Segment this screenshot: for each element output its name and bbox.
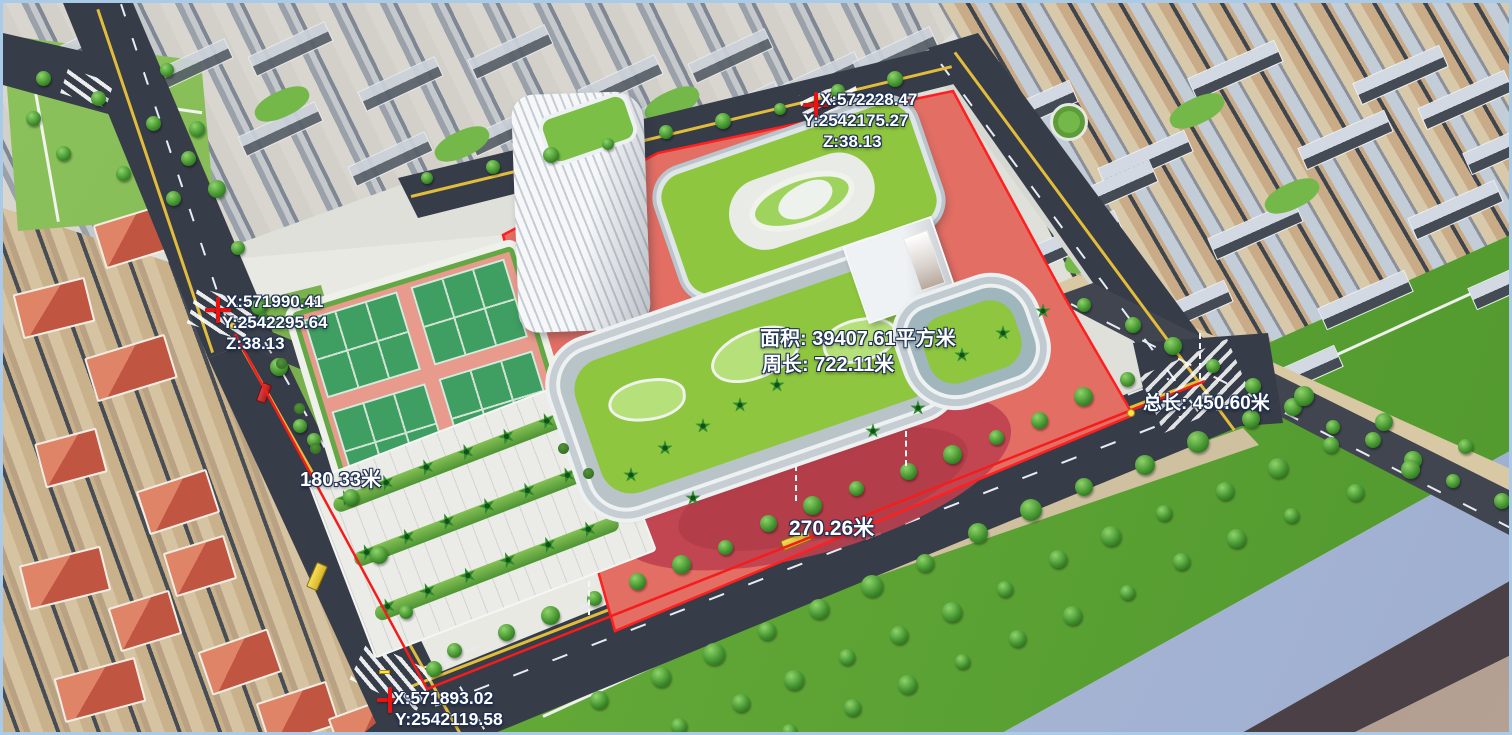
perimeter-value: 周长: 722.11米 xyxy=(762,352,894,378)
tree-icon xyxy=(602,138,614,150)
total-length-readout: 总长: 450.60米 xyxy=(1143,388,1270,415)
tree-icon xyxy=(146,116,161,131)
tree-icon xyxy=(839,649,855,665)
tree-icon xyxy=(916,554,934,572)
tree-icon xyxy=(887,71,903,87)
tree-icon xyxy=(1049,550,1067,568)
tree-icon xyxy=(1031,412,1048,429)
coord-y: Y:2542175.27 xyxy=(803,110,909,131)
tree-icon xyxy=(672,555,691,574)
tree-icon xyxy=(1494,493,1510,509)
tree-icon xyxy=(1135,455,1155,475)
tree-icon xyxy=(1365,432,1381,448)
bush-icon xyxy=(294,403,305,414)
tree-icon xyxy=(782,724,797,735)
tree-icon xyxy=(809,599,829,619)
segment-south-readout: 270.26米 xyxy=(789,512,874,542)
tree-icon xyxy=(370,546,388,564)
tree-icon xyxy=(1063,606,1082,625)
tree-icon xyxy=(447,643,462,658)
tree-icon xyxy=(671,718,687,734)
tree-icon xyxy=(541,606,560,625)
tree-icon xyxy=(861,575,883,597)
vertex-dot xyxy=(1127,409,1135,417)
tree-icon xyxy=(1206,359,1220,373)
billboard xyxy=(903,230,946,291)
tree-icon xyxy=(1458,439,1473,454)
coordinate-readout-north: X:572228.47 Y:2542175.27 Z:38.13 xyxy=(803,47,822,152)
tree-icon xyxy=(715,113,731,129)
tree-icon xyxy=(1101,526,1121,546)
tree-icon xyxy=(1009,630,1026,647)
tree-icon xyxy=(1347,484,1364,501)
coord-x: X:571893.02 xyxy=(393,688,493,709)
tree-icon xyxy=(943,445,962,464)
tree-icon xyxy=(651,667,671,687)
coord-z: Z:38.13 xyxy=(226,333,285,354)
palm-tree-icon xyxy=(1035,303,1051,319)
tree-icon xyxy=(1120,372,1135,387)
coordinate-readout-west: X:571990.41 Y:2542295.64 Z:38.13 xyxy=(222,249,241,354)
tree-icon xyxy=(955,654,970,669)
tree-icon xyxy=(1074,387,1093,406)
bush-icon xyxy=(310,443,321,454)
area-value: 面积: 39407.61平方米 xyxy=(760,326,956,352)
tree-icon xyxy=(1187,431,1209,453)
tree-icon xyxy=(758,622,776,640)
tree-icon xyxy=(784,670,804,690)
coord-x: X:571990.41 xyxy=(226,291,323,312)
tree-icon xyxy=(1156,505,1172,521)
coord-x: X:572228.47 xyxy=(820,89,917,110)
tree-icon xyxy=(659,125,673,139)
tree-icon xyxy=(426,661,442,677)
tree-icon xyxy=(116,166,131,181)
tree-icon xyxy=(1268,458,1288,478)
tree-icon xyxy=(1323,437,1339,453)
tree-icon xyxy=(56,146,71,161)
tree-icon xyxy=(1446,474,1460,488)
tree-icon xyxy=(1216,482,1234,500)
tree-icon xyxy=(160,63,174,77)
vertex-flag xyxy=(1199,333,1201,379)
map-3d-viewport[interactable]: X:572228.47 Y:2542175.27 Z:38.13 X:57199… xyxy=(0,0,1512,735)
tree-icon xyxy=(989,430,1004,445)
coord-y: Y:2542119.58 xyxy=(395,709,503,730)
vertex-flag xyxy=(905,431,907,466)
coord-y: Y:2542295.64 xyxy=(222,312,328,333)
tree-icon xyxy=(189,121,205,137)
bush-icon xyxy=(583,468,594,479)
tree-icon xyxy=(703,643,725,665)
tree-icon xyxy=(1020,499,1042,521)
tree-icon xyxy=(486,160,500,174)
tree-icon xyxy=(629,573,646,590)
tree-icon xyxy=(968,523,988,543)
segment-west-readout: 180.33米 xyxy=(300,463,381,492)
vertex-flag xyxy=(795,465,797,501)
tree-icon xyxy=(543,147,559,163)
coordinate-readout-south: X:571893.02 Y:2542119.58 Z:38.13 xyxy=(393,646,412,735)
tree-icon xyxy=(1164,337,1182,355)
tree-icon xyxy=(997,581,1013,597)
tree-icon xyxy=(166,191,181,206)
tree-icon xyxy=(1401,460,1420,479)
coord-z: Z:38.13 xyxy=(823,131,882,152)
tree-icon xyxy=(1326,420,1340,434)
tree-icon xyxy=(1075,478,1093,496)
tree-icon xyxy=(849,481,864,496)
tree-icon xyxy=(1120,585,1135,600)
tree-icon xyxy=(760,515,777,532)
vertex-flag xyxy=(588,581,590,615)
area-readout: 面积: 39407.61平方米 周长: 722.11米 xyxy=(760,274,782,378)
tree-icon xyxy=(91,91,106,106)
tree-icon xyxy=(1077,298,1091,312)
tree-icon xyxy=(732,694,750,712)
bush-icon xyxy=(558,443,569,454)
vertex-dash-yellow xyxy=(379,670,390,674)
tree-icon xyxy=(1375,413,1393,431)
tree-icon xyxy=(36,71,51,86)
tree-icon xyxy=(1294,386,1314,406)
tree-icon xyxy=(208,180,226,198)
tree-icon xyxy=(181,151,196,166)
tree-icon xyxy=(718,540,733,555)
tree-icon xyxy=(421,172,433,184)
tree-icon xyxy=(942,602,962,622)
circular-garden xyxy=(1050,103,1088,141)
tree-icon xyxy=(590,691,608,709)
tree-icon xyxy=(399,605,413,619)
bush-icon xyxy=(276,358,287,369)
tree-icon xyxy=(26,111,41,126)
tree-icon xyxy=(890,626,908,644)
tree-icon xyxy=(1284,508,1299,523)
tree-icon xyxy=(293,419,307,433)
coord-z: Z:38.13 xyxy=(398,730,458,735)
